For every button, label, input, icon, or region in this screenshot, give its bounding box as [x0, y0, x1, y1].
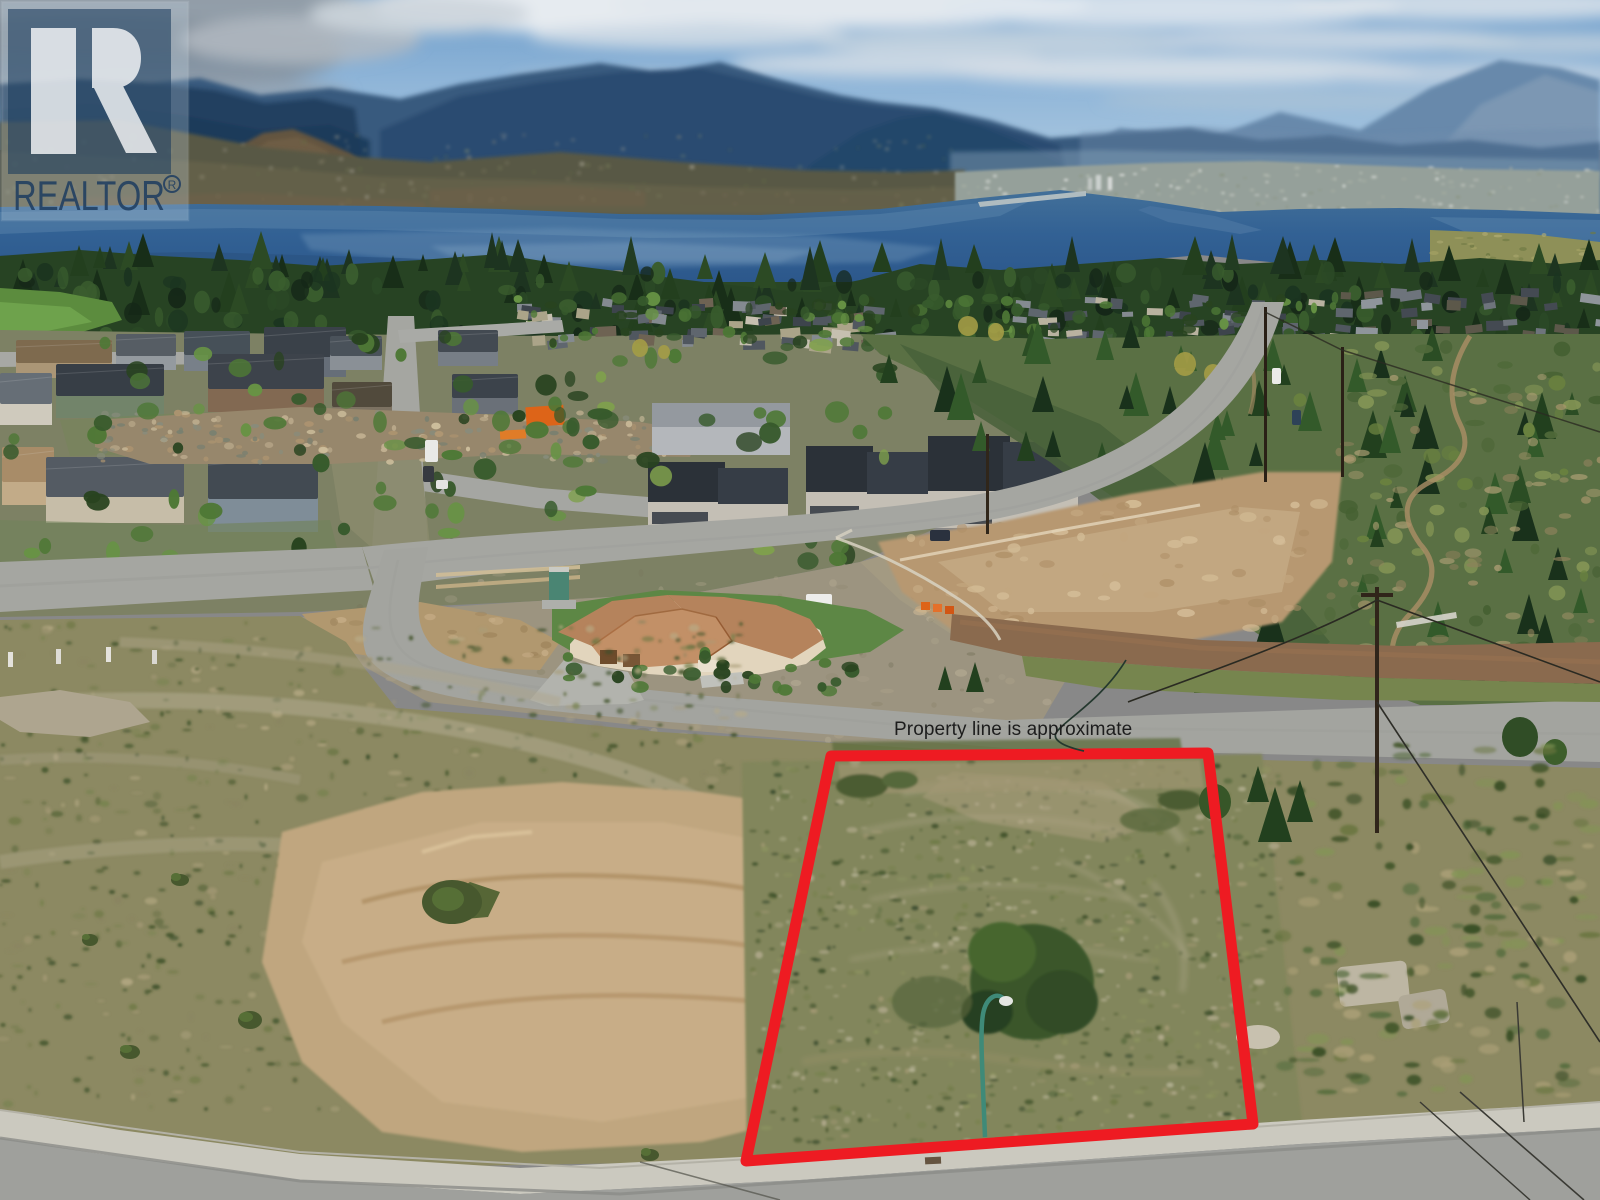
svg-text:R: R — [168, 178, 177, 192]
svg-text:REALTOR: REALTOR — [13, 172, 165, 219]
svg-text:Property line is approximate: Property line is approximate — [894, 719, 1132, 740]
